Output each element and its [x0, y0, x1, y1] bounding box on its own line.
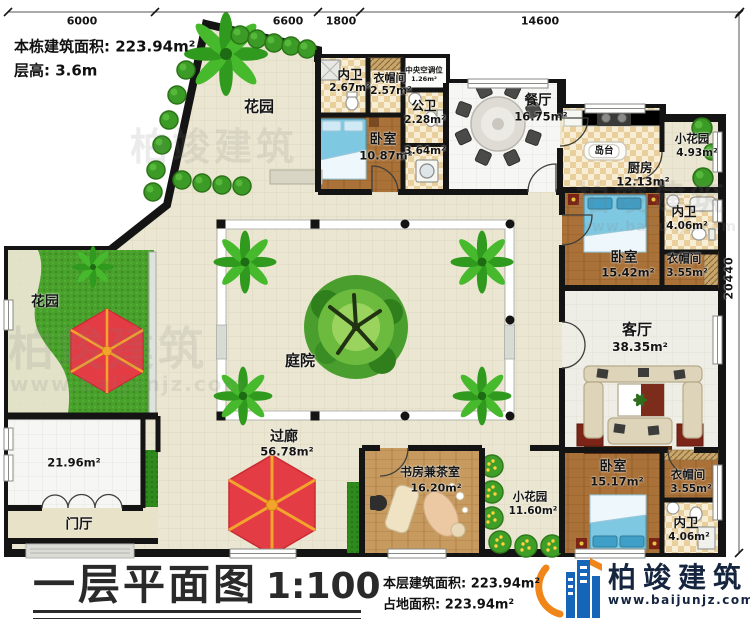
island-label: 岛台 — [588, 144, 619, 158]
room-area-cloak-top: 2.57m² — [370, 86, 411, 97]
room-label-bedroom-right: 卧室 — [611, 251, 638, 265]
room-label-cloak-top: 衣帽间 — [374, 73, 407, 84]
room-label-cloak-br: 衣帽间 — [671, 469, 706, 481]
floorplan-page: 柏竣建筑 柏竣建筑 www.baijunjz.com 柏竣建筑 www.baij… — [0, 0, 750, 623]
room-label-kitchen: 厨房 — [627, 162, 652, 175]
dim-top-6000: 6000 — [67, 16, 98, 27]
room-area-kitchen: 12.13m² — [616, 176, 669, 188]
brand-logo-icon — [539, 558, 602, 618]
room-area-gongwei: 2.28m² — [404, 115, 445, 126]
room-area-study: 16.20m² — [410, 483, 461, 494]
room-label-garden-bottom: 小花园 — [513, 491, 548, 503]
room-area-bl: 21.96m² — [47, 457, 100, 469]
room-label-garden-tl: 花园 — [244, 100, 274, 115]
watermark-site: www.baijunjz.com — [578, 220, 737, 234]
room-area-garden-bottom: 11.60m² — [509, 506, 558, 517]
building-area-note: 本栋建筑面积: 223.94m² — [14, 40, 195, 55]
room-area-corridor: 56.78m² — [260, 446, 313, 458]
room-area-cloak-br: 3.55m² — [670, 484, 711, 495]
dim-top-1800: 1800 — [326, 16, 357, 27]
room-label-bedroom-top: 卧室 — [370, 133, 397, 147]
room-label-hvac: 中央空调位 — [405, 66, 443, 74]
room-label-neiwei-top: 内卫 — [337, 69, 362, 82]
room-label-cloak-right: 衣帽间 — [667, 253, 702, 265]
room-label-courtyard: 庭院 — [285, 354, 315, 369]
page-title: 一层平面图 — [33, 564, 258, 606]
land-area-note: 占地面积: 223.94m² — [383, 599, 514, 612]
watermark-brand: 柏竣建筑 — [130, 128, 298, 166]
center-tree — [304, 275, 408, 379]
dim-top-14600: 14600 — [521, 16, 559, 27]
room-label-dining: 餐厅 — [525, 94, 552, 108]
room-area-neiwei-top: 2.67m² — [329, 83, 370, 94]
brand-website: www.baijunjz.com — [608, 594, 750, 606]
room-area-garden-tr: 4.93m² — [676, 148, 717, 159]
floor-area-note: 本层建筑面积: 223.94m² — [383, 578, 540, 591]
dim-top-6600: 6600 — [273, 16, 304, 27]
room-label-garden-left: 花园 — [31, 295, 59, 309]
room-label-neiwei-right: 内卫 — [671, 206, 696, 219]
sofa-set — [577, 366, 703, 454]
room-label-study: 书房兼茶室 — [400, 466, 460, 478]
room-label-living: 客厅 — [622, 323, 652, 338]
scale-label: 1:100 — [266, 569, 381, 605]
room-area-living: 38.35m² — [612, 341, 668, 353]
room-area-neiwei-br: 4.06m² — [668, 532, 709, 543]
room-label-foyer: 门厅 — [66, 518, 93, 532]
dim-right-20440: 20440 — [724, 256, 735, 299]
watermark-brand: 柏竣建筑 — [8, 326, 208, 372]
room-area-hall364: 3.64m² — [404, 146, 445, 157]
room-label-garden-tr: 小花园 — [675, 133, 710, 145]
room-label-gongwei: 公卫 — [411, 100, 436, 113]
room-area-cloak-right: 3.55m² — [666, 268, 707, 279]
entrance-porch — [26, 544, 134, 558]
room-area-neiwei-right: 4.06m² — [666, 221, 707, 232]
watermark-site: www.baijunjz.com — [10, 374, 246, 394]
floor-height-note: 层高: 3.6m — [14, 64, 97, 79]
room-label-corridor: 过廊 — [270, 430, 298, 444]
title-underline — [33, 610, 361, 619]
brand-name: 柏竣建筑 — [608, 564, 748, 592]
room-area-dining: 16.75m² — [514, 111, 567, 123]
room-area-bedroom-br: 15.17m² — [590, 476, 643, 488]
room-label-bedroom-br: 卧室 — [600, 460, 627, 474]
room-label-neiwei-br: 内卫 — [673, 517, 698, 530]
room-area-hvac: 1.26m² — [411, 76, 437, 83]
room-area-bedroom-right: 15.42m² — [601, 267, 654, 279]
